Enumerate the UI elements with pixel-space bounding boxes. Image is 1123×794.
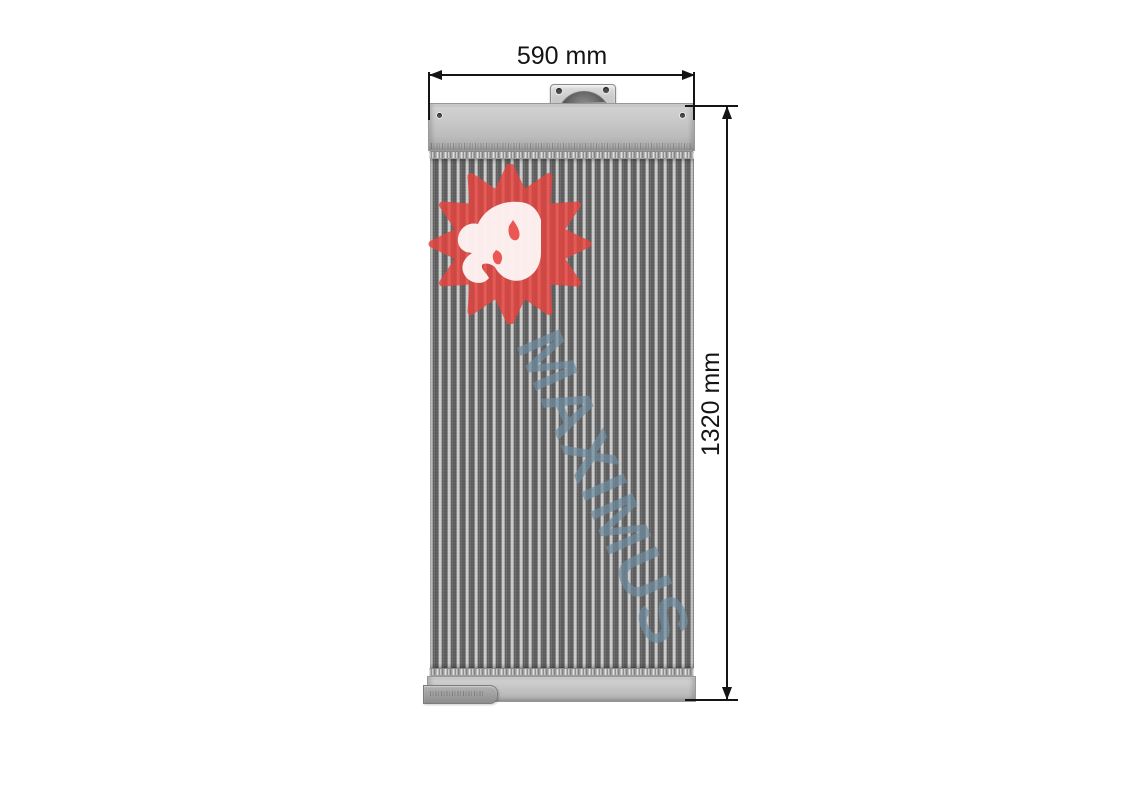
arrow-up-icon	[722, 106, 732, 119]
height-dimension-label: 1320 mm	[697, 294, 727, 514]
mounting-bracket-tab	[423, 685, 498, 704]
width-dimension-line	[429, 74, 694, 76]
arrow-right-icon	[682, 70, 695, 80]
flange-bolt-hole-tr	[603, 87, 609, 93]
top-tank-plate	[428, 103, 695, 151]
rivet-hole-left	[437, 113, 442, 118]
flange-bolt-hole-tl	[556, 88, 562, 94]
product-figure: MAXIMUS 590 mm 1320 mm	[0, 0, 1123, 794]
width-dimension-label: 590 mm	[430, 42, 694, 71]
rivet-hole-right	[680, 113, 685, 118]
maximus-lion-logo-icon	[426, 164, 594, 324]
height-dimension-line	[726, 106, 728, 700]
bracket-stamp-strip	[430, 691, 483, 696]
header-bead-row-top	[429, 151, 694, 159]
arrow-down-icon	[722, 687, 732, 700]
arrow-left-icon	[429, 70, 442, 80]
top-plate-stamp-strip	[431, 143, 692, 149]
